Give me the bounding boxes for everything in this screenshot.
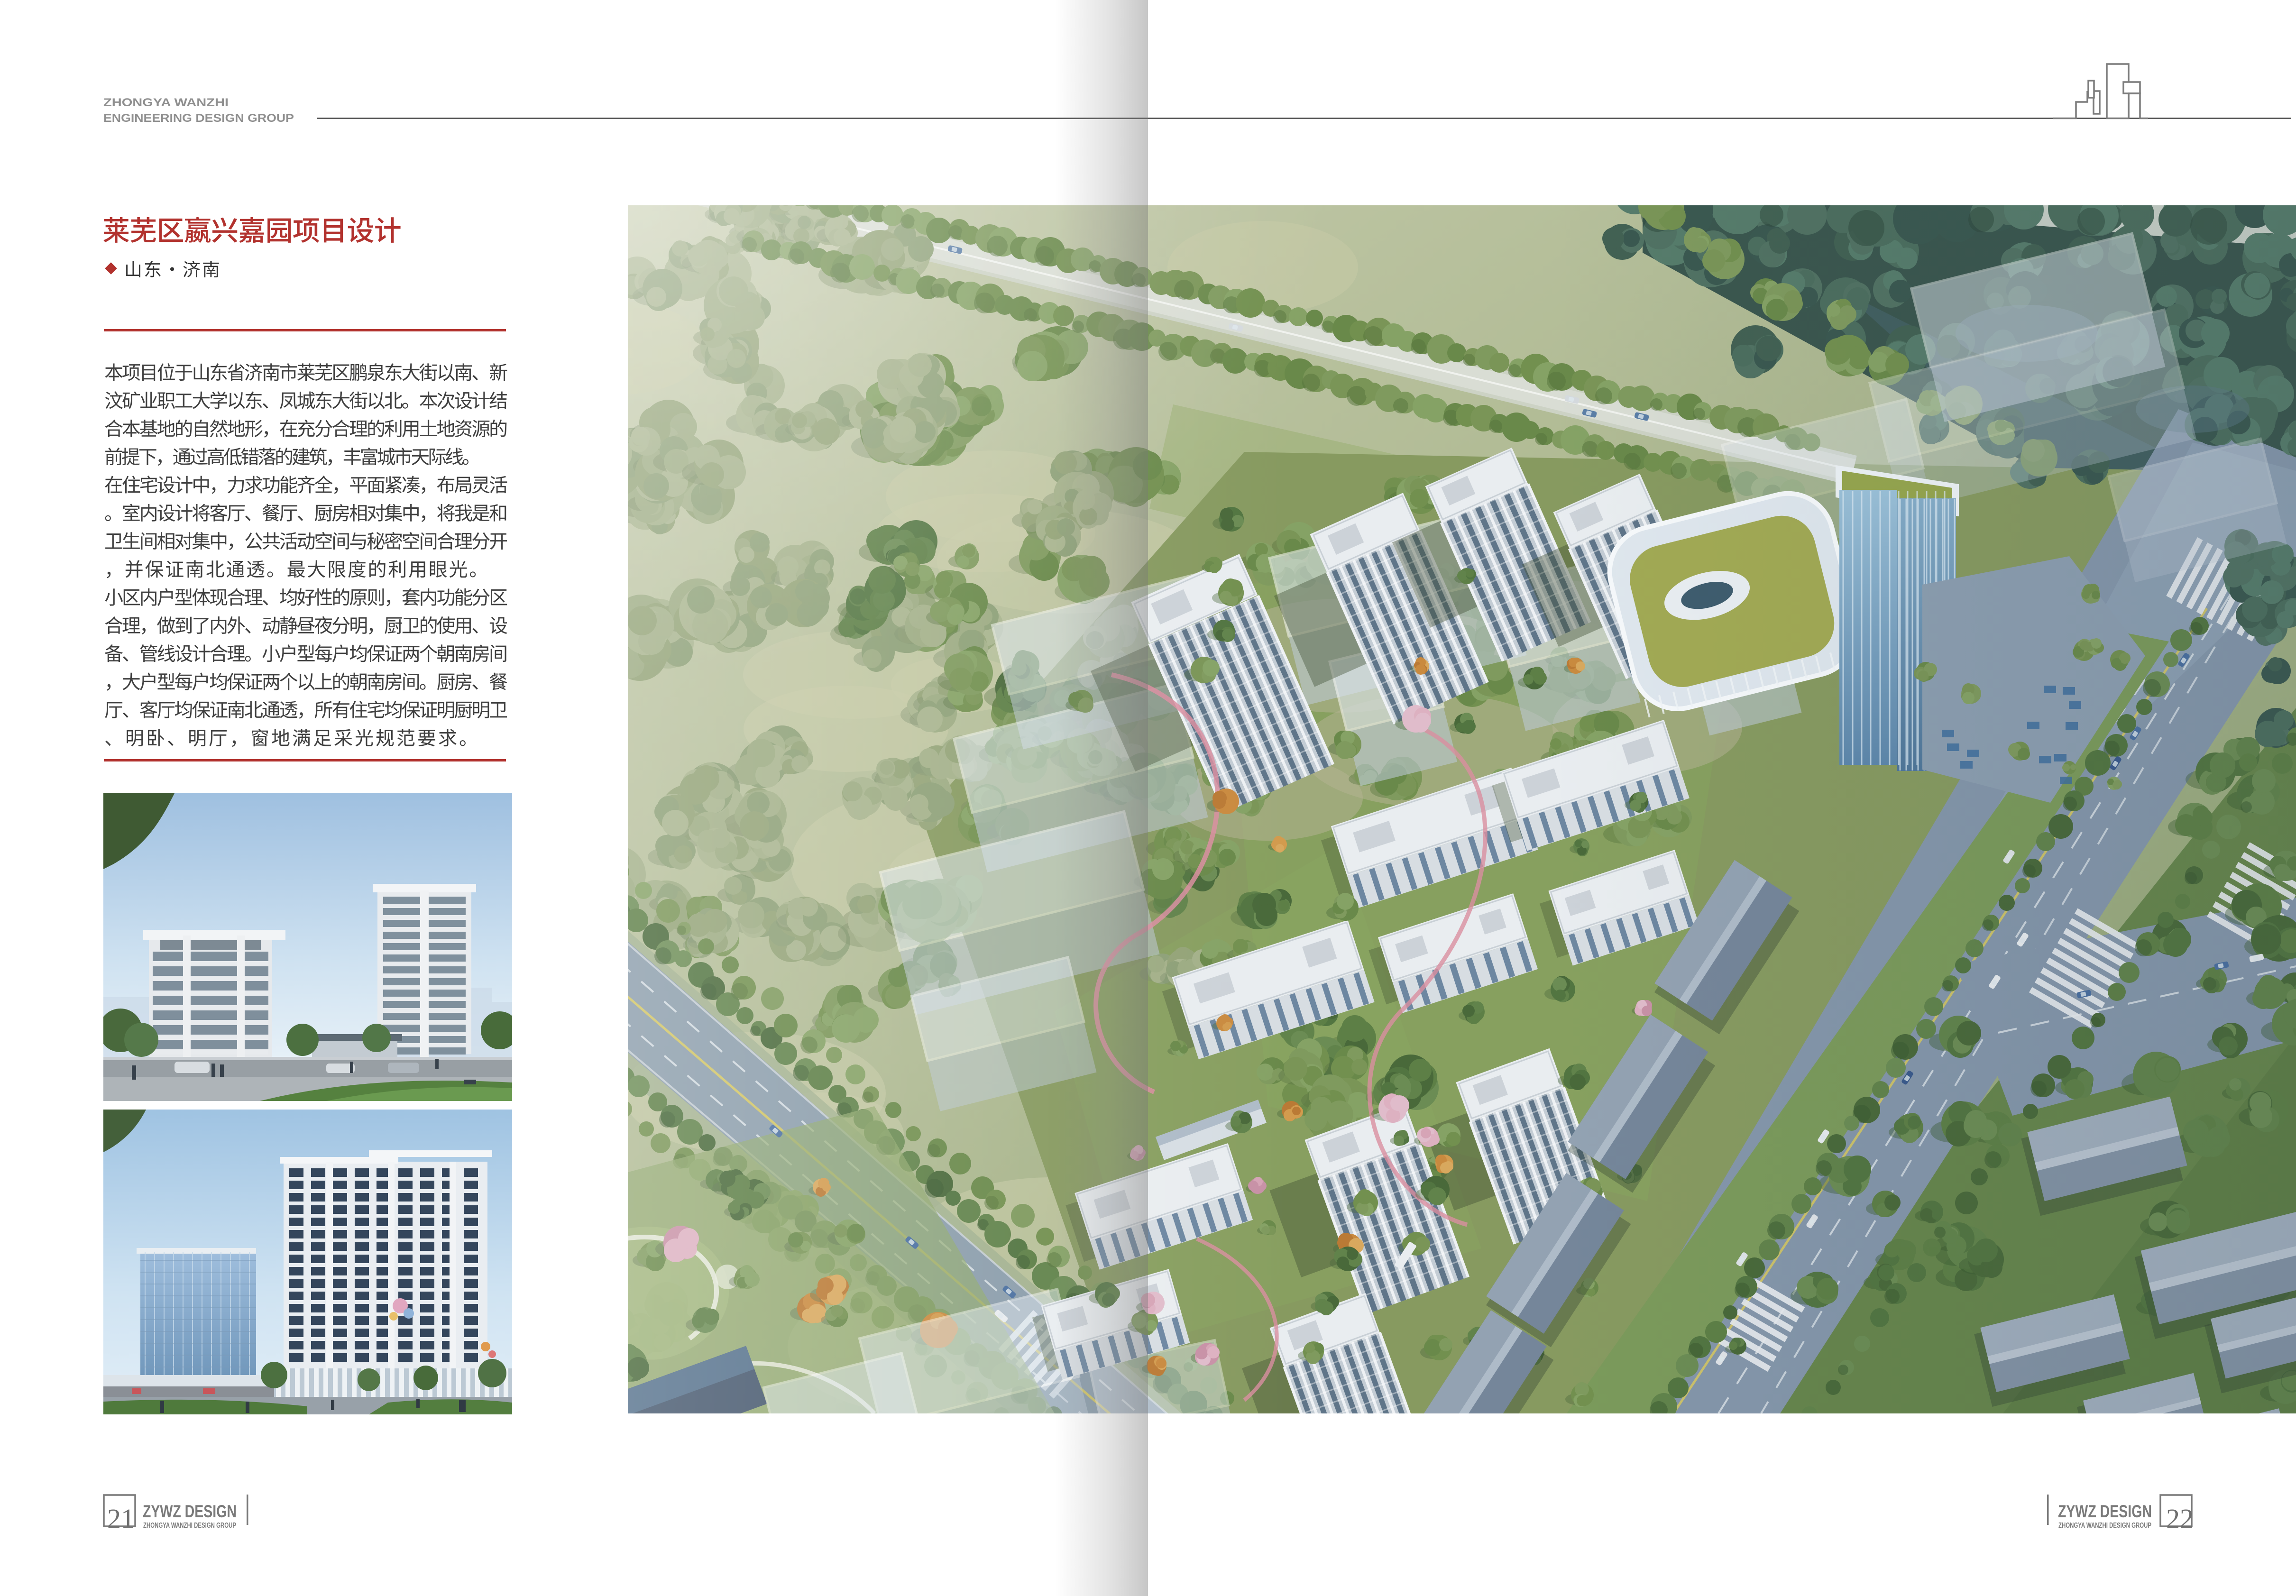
svg-text:21: 21 <box>107 1503 135 1534</box>
svg-text:22: 22 <box>2166 1503 2194 1534</box>
svg-text:ZHONGYA WANZHI DESIGN GROUP: ZHONGYA WANZHI DESIGN GROUP <box>2058 1522 2151 1530</box>
svg-text:ZYWZ DESIGN: ZYWZ DESIGN <box>2058 1502 2152 1521</box>
svg-text:ZHONGYA WANZHI DESIGN GROUP: ZHONGYA WANZHI DESIGN GROUP <box>143 1522 236 1530</box>
svg-text:ENGINEERING DESIGN GROUP: ENGINEERING DESIGN GROUP <box>103 112 294 125</box>
svg-text:ZYWZ DESIGN: ZYWZ DESIGN <box>143 1502 237 1521</box>
svg-text:ZHONGYA WANZHI: ZHONGYA WANZHI <box>103 96 229 109</box>
